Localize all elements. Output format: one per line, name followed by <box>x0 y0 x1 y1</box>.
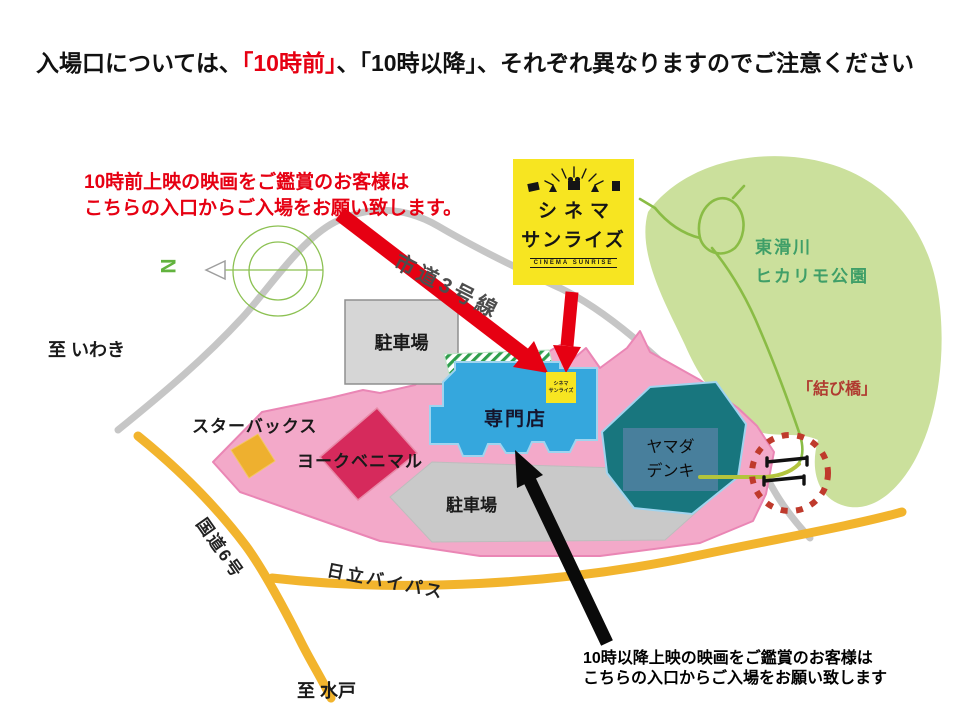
compass-north-label: N <box>158 258 182 273</box>
title-highlight-before10: 「10時前」 <box>242 50 337 76</box>
direction-to-mito: 至 水戸 <box>297 677 356 703</box>
park-label-line2: ヒカリモ公園 <box>755 263 869 292</box>
map-canvas <box>0 0 960 720</box>
access-map-page: 入場口については、「10時前」、「10時以降」、それぞれ異なりますのでご注意くだ… <box>0 0 960 720</box>
mini-logo-line2: サンライズ <box>549 388 574 395</box>
logo-sunburst-icon <box>522 165 626 195</box>
direction-to-iwaki: 至 いわき <box>48 336 125 362</box>
logo-text-line1: シネマ <box>538 196 616 223</box>
cinema-sunrise-logo: シネマ サンライズ CINEMA SUNRISE <box>513 159 634 285</box>
before10-note-line1: 10時前上映の映画をご鑑賞のお客様は <box>84 170 462 196</box>
after10-note-line1: 10時以降上映の映画をご鑑賞のお客様は <box>583 649 887 669</box>
logo-banner-text: CINEMA SUNRISE <box>530 258 618 268</box>
yamada-denki-label-line2: デンキ <box>646 460 694 484</box>
specialty-store-label: 専門店 <box>484 404 547 431</box>
parking-north-label: 駐車場 <box>345 300 458 384</box>
page-title: 入場口については、「10時前」、「10時以降」、それぞれ異なりますのでご注意くだ… <box>36 44 914 78</box>
york-benimaru-label: ヨークベニマル <box>297 447 423 472</box>
title-suffix: 、「10時以降」、それぞれ異なりますのでご注意ください <box>336 50 914 76</box>
park-label-line1: 東滑川 <box>755 234 869 263</box>
compass-icon <box>206 226 323 316</box>
after10-note: 10時以降上映の映画をご鑑賞のお客様は こちらの入口からご入場をお願い致します <box>583 649 887 690</box>
before10-note: 10時前上映の映画をご鑑賞のお客様は こちらの入口からご入場をお願い致します。 <box>84 170 462 221</box>
park-label: 東滑川 ヒカリモ公園 <box>755 234 869 292</box>
before10-note-line2: こちらの入口からご入場をお願い致します。 <box>84 196 462 222</box>
title-prefix: 入場口については、 <box>36 50 242 76</box>
parking-south-label: 駐車場 <box>446 491 497 516</box>
mini-logo-line1: シネマ <box>553 381 568 388</box>
yamada-denki-label: ヤマダ デンキ <box>623 428 718 491</box>
musubi-bridge-label: 「結び橋」 <box>797 375 877 399</box>
after10-note-line2: こちらの入口からご入場をお願い致します <box>583 669 887 689</box>
yamada-denki-label-line1: ヤマダ <box>646 436 694 460</box>
logo-text-line2: サンライズ <box>521 225 625 252</box>
starbucks-label: スターバックス <box>192 412 317 437</box>
mini-cinema-logo: シネマ サンライズ <box>546 372 576 403</box>
